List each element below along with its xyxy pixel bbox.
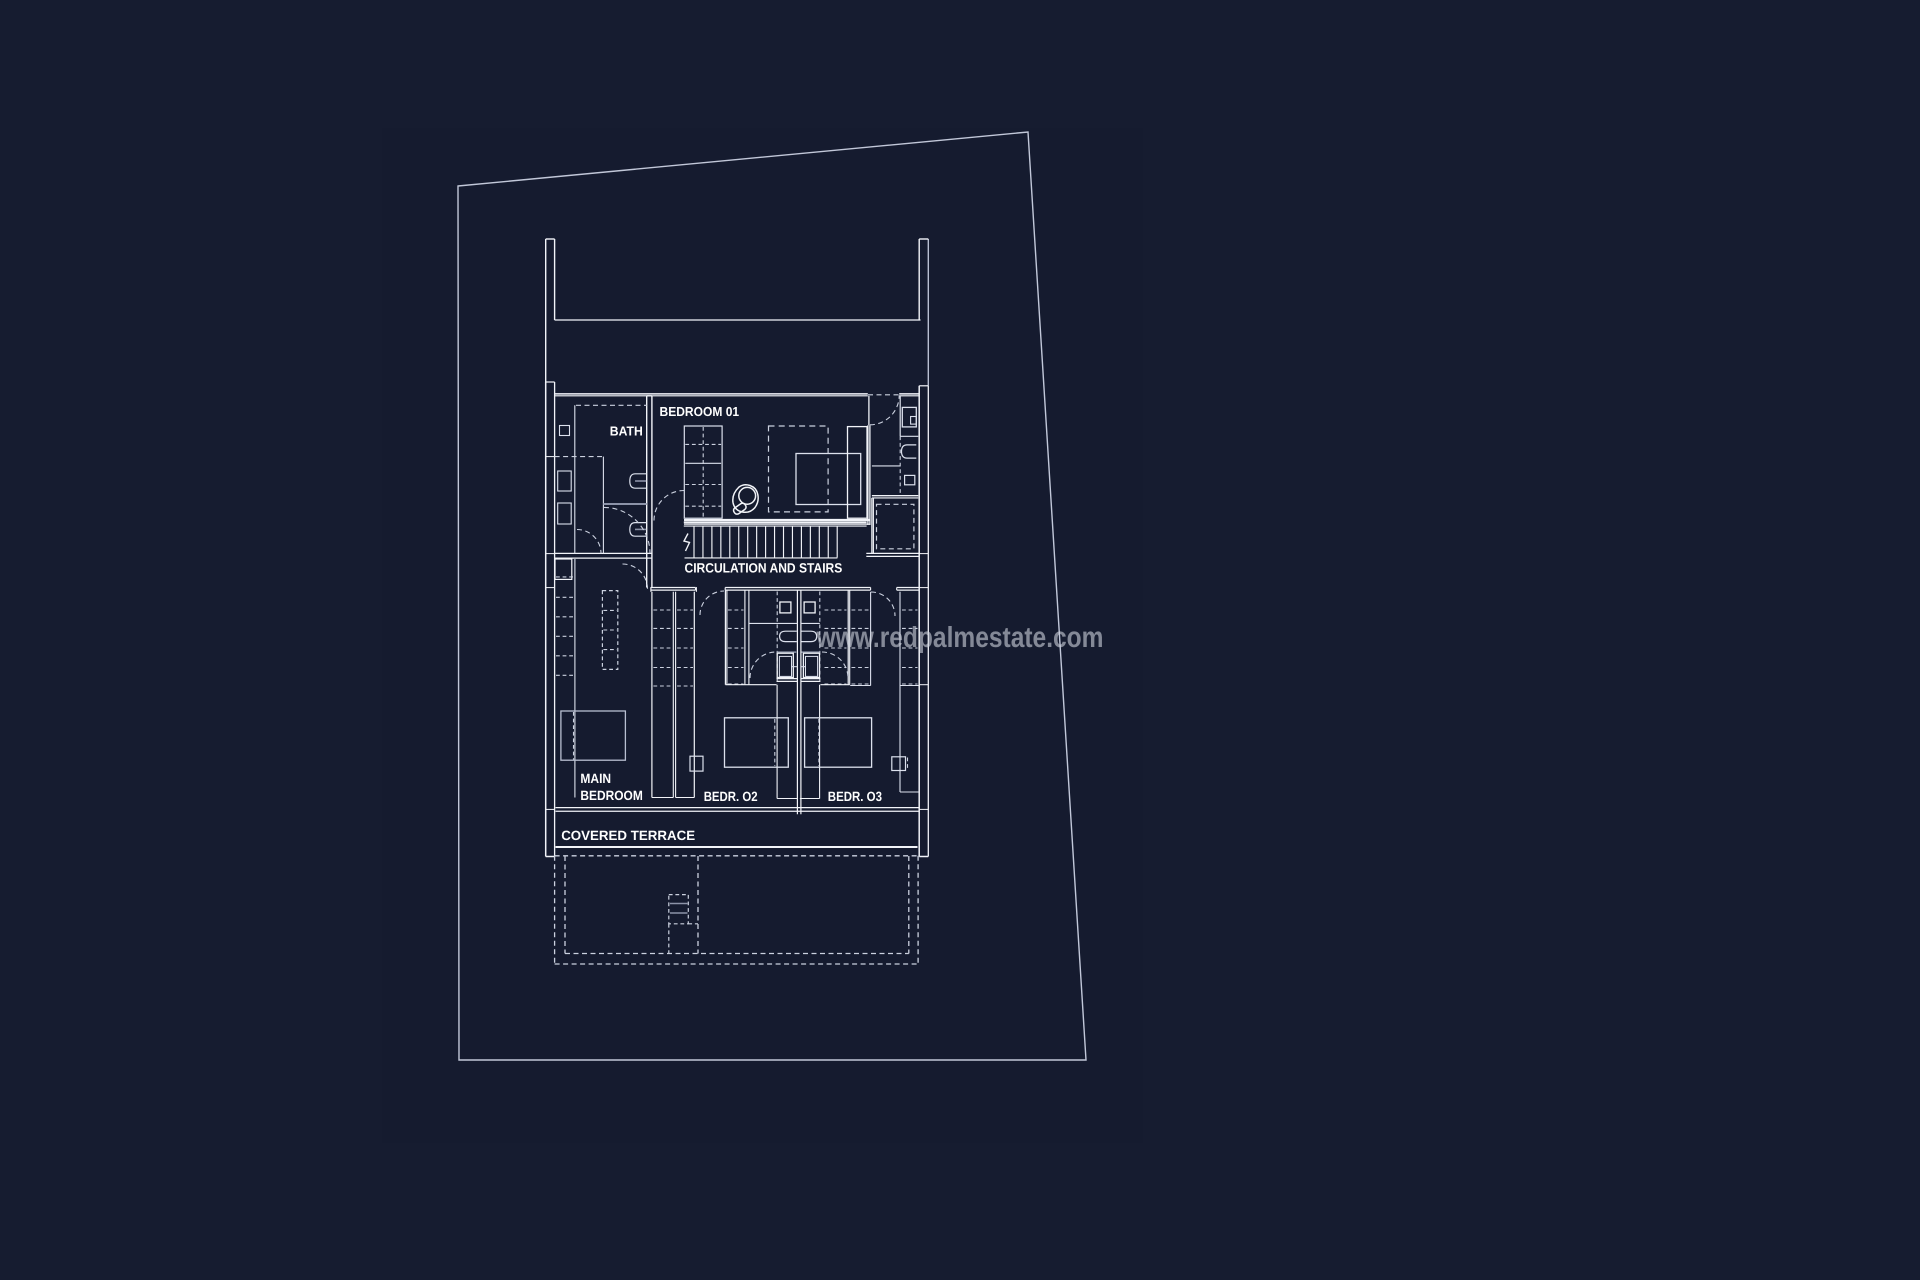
svg-text:www.redpalmestate.com: www.redpalmestate.com	[816, 622, 1104, 654]
svg-text:MAIN: MAIN	[580, 771, 611, 786]
svg-text:BEDR. O2: BEDR. O2	[704, 789, 758, 804]
svg-text:BEDROOM 01: BEDROOM 01	[660, 404, 740, 419]
svg-text:CIRCULATION AND STAIRS: CIRCULATION AND STAIRS	[685, 560, 843, 575]
svg-text:BATH: BATH	[610, 424, 643, 439]
svg-text:BEDROOM: BEDROOM	[580, 788, 642, 803]
svg-text:COVERED TERRACE: COVERED TERRACE	[561, 828, 695, 843]
svg-text:BEDR. O3: BEDR. O3	[828, 789, 883, 804]
